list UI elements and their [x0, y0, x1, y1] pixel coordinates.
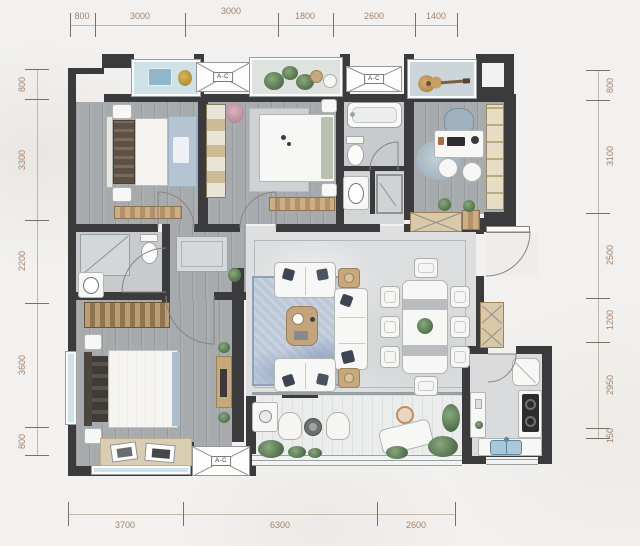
entry-door-swing — [486, 232, 530, 276]
kitchen-door-swing — [488, 354, 516, 382]
master-door-swing — [166, 296, 214, 344]
door-swing-arcs — [0, 0, 640, 546]
bathroom1-door-swing — [370, 142, 398, 170]
bedroom2-door-swing — [240, 192, 276, 228]
floor-plan-canvas: 800 3000 3000 1800 2600 1400 3700 6300 2… — [0, 0, 640, 546]
bathroom2-door-swing — [122, 248, 166, 292]
bedroom1-door-swing — [158, 192, 194, 228]
